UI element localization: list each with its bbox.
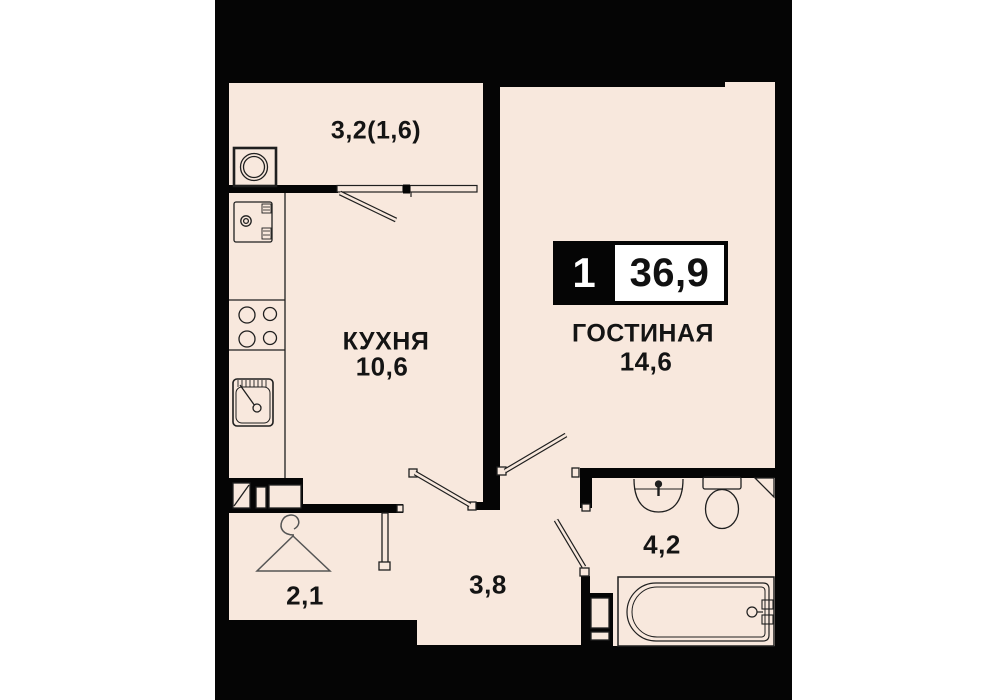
- door-frame-cap: [582, 504, 590, 511]
- window-pane: [410, 186, 477, 193]
- wall-bathroom-top: [580, 468, 775, 478]
- vent-shaft-inset: [591, 598, 609, 628]
- apartment-floor: [229, 82, 775, 646]
- bathroom-area-label: 4,2: [643, 530, 681, 561]
- living-area-label: 14,6: [620, 347, 673, 378]
- entrance-door-leaf: [382, 513, 388, 564]
- door-frame-cap: [497, 467, 506, 475]
- vent-shaft-inset: [591, 632, 609, 640]
- door-frame-cap: [397, 505, 403, 512]
- vent-shaft-inset: [269, 485, 301, 508]
- room-count-value: 1: [553, 241, 615, 305]
- room-count-badge: 1 36,9: [553, 241, 728, 305]
- entrance-door-stop: [379, 562, 390, 570]
- balcony-label: 3,2(1,6): [331, 117, 421, 146]
- wall-kitchen-living: [483, 83, 500, 510]
- window-pane: [337, 186, 403, 193]
- living-name-label: ГОСТИНАЯ: [572, 320, 714, 349]
- hallway-area-label: 3,8: [469, 570, 507, 601]
- window-divider: [403, 185, 410, 194]
- door-frame-cap: [580, 568, 589, 576]
- door-frame-cap: [572, 468, 579, 477]
- kitchen-area-label: 10,6: [356, 352, 409, 383]
- entry-area-label: 2,1: [286, 581, 324, 612]
- floor-plan: 3,2(1,6) КУХНЯ 10,6 ГОСТИНАЯ 14,6 4,2 3,…: [0, 0, 1006, 700]
- total-area-value: 36,9: [615, 245, 724, 301]
- vent-shaft-inset: [256, 487, 266, 508]
